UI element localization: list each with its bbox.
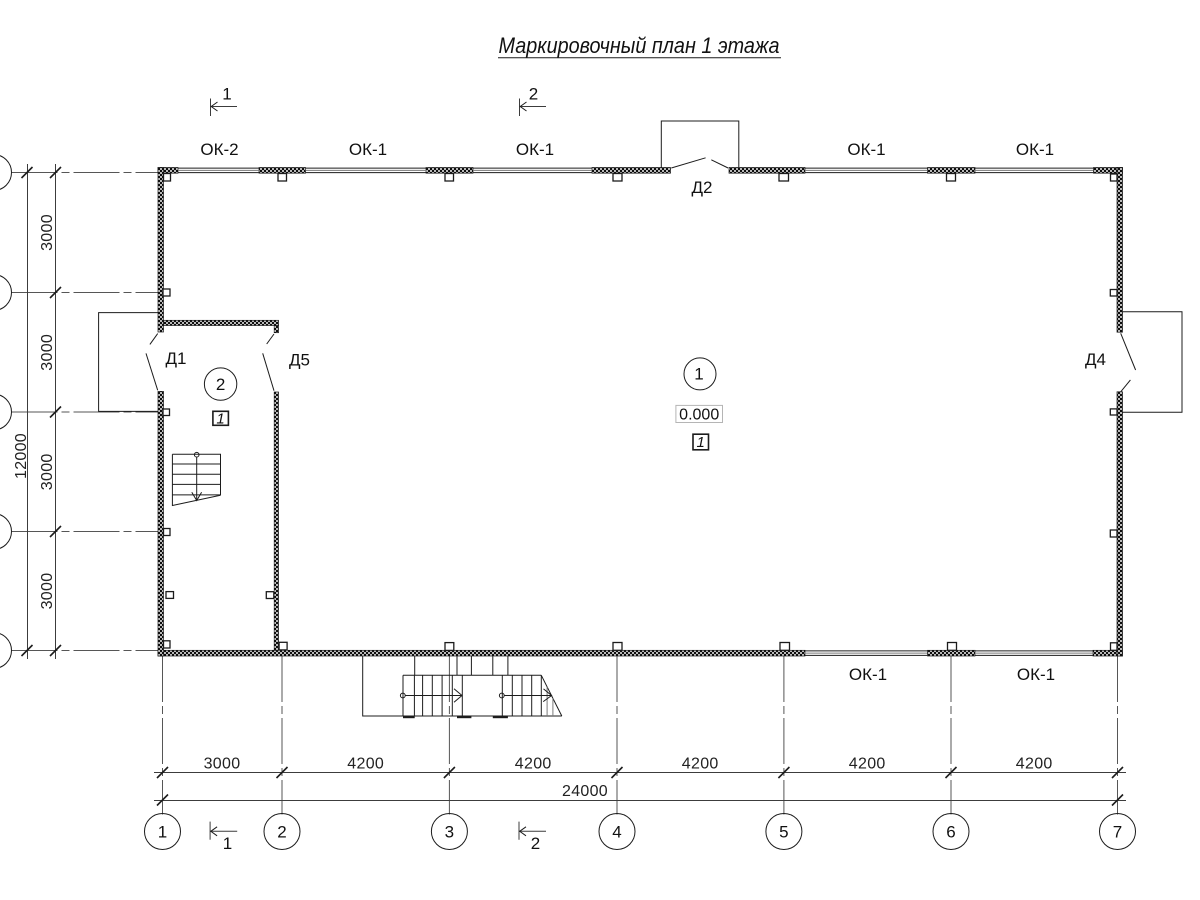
svg-text:3000: 3000 bbox=[39, 573, 56, 610]
svg-text:1: 1 bbox=[216, 410, 224, 427]
svg-text:ОК-1: ОК-1 bbox=[849, 665, 887, 684]
svg-text:12000: 12000 bbox=[13, 433, 30, 479]
svg-text:Маркировочный план 1 этажа: Маркировочный план 1 этажа bbox=[499, 33, 780, 58]
svg-text:6: 6 bbox=[946, 823, 955, 842]
svg-text:3: 3 bbox=[445, 823, 454, 842]
svg-text:1: 1 bbox=[222, 85, 231, 104]
svg-text:4200: 4200 bbox=[682, 756, 719, 773]
svg-text:Д4: Д4 bbox=[1085, 350, 1106, 369]
svg-text:24000: 24000 bbox=[562, 783, 608, 800]
svg-text:1: 1 bbox=[697, 434, 705, 451]
svg-text:3000: 3000 bbox=[39, 334, 56, 371]
svg-text:0.000: 0.000 bbox=[679, 407, 719, 424]
svg-text:Д1: Д1 bbox=[166, 349, 187, 368]
svg-text:4200: 4200 bbox=[515, 756, 552, 773]
svg-text:2: 2 bbox=[277, 823, 286, 842]
svg-text:ОК-1: ОК-1 bbox=[1016, 140, 1054, 159]
svg-text:1: 1 bbox=[158, 823, 167, 842]
svg-text:4200: 4200 bbox=[347, 756, 384, 773]
svg-text:Д5: Д5 bbox=[289, 351, 310, 370]
svg-text:1: 1 bbox=[223, 834, 232, 853]
svg-text:2: 2 bbox=[531, 834, 540, 853]
svg-text:3000: 3000 bbox=[39, 214, 56, 251]
svg-text:Д2: Д2 bbox=[692, 178, 713, 197]
svg-text:4200: 4200 bbox=[1016, 756, 1053, 773]
svg-text:4: 4 bbox=[612, 823, 621, 842]
svg-text:ОК-1: ОК-1 bbox=[847, 140, 885, 159]
svg-text:5: 5 bbox=[779, 823, 788, 842]
svg-text:ОК-1: ОК-1 bbox=[516, 140, 554, 159]
svg-text:2: 2 bbox=[529, 85, 538, 104]
svg-text:3000: 3000 bbox=[39, 453, 56, 490]
svg-text:ОК-1: ОК-1 bbox=[1017, 665, 1055, 684]
svg-text:1: 1 bbox=[694, 365, 703, 384]
svg-text:ОК-2: ОК-2 bbox=[200, 140, 238, 159]
svg-text:ОК-1: ОК-1 bbox=[349, 140, 387, 159]
svg-text:3000: 3000 bbox=[204, 756, 241, 773]
svg-text:4200: 4200 bbox=[849, 756, 886, 773]
svg-text:7: 7 bbox=[1113, 823, 1122, 842]
svg-text:2: 2 bbox=[216, 375, 225, 394]
